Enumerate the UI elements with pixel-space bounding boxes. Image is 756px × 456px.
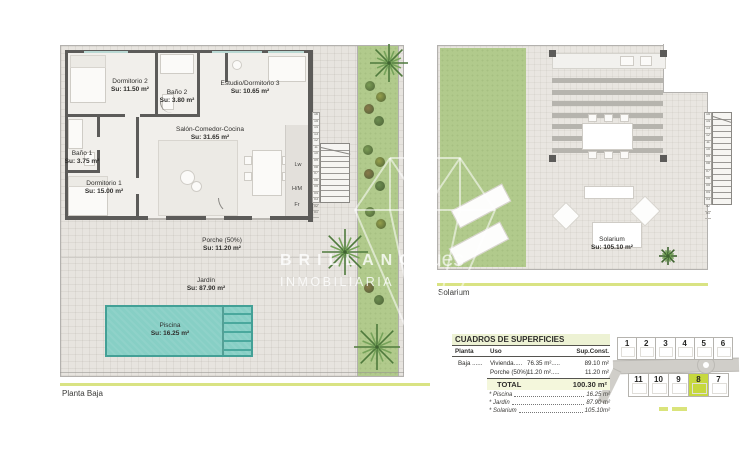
surface-footnotes: * Piscina16.25 m²* Jardín87.90 m²* Solar… — [489, 390, 610, 414]
pergola-slat — [552, 78, 663, 83]
plot-4: 4 — [675, 337, 695, 360]
footnote-label: * Piscina — [489, 392, 512, 398]
room-area: Su: 11.50 m² — [111, 86, 149, 94]
appliance-label-dishwasher: Lw — [289, 162, 307, 168]
room-name: Baño 2 — [160, 89, 195, 97]
pool-step-line — [224, 340, 251, 342]
stair-step-number: 14 — [705, 120, 711, 127]
cell-planta: Baja ...... — [458, 360, 482, 367]
dotted-leader — [512, 404, 585, 405]
stair-step — [321, 185, 349, 186]
logo-fragment — [659, 407, 668, 411]
stair-step-number: 06 — [705, 177, 711, 184]
room-label-jardin: Jardín Su: 87.90 m² — [187, 277, 225, 294]
stair-step-number: 12 — [705, 134, 711, 141]
logo-fragment — [672, 407, 687, 411]
plot-11: 11 — [628, 373, 649, 397]
stair-step — [321, 156, 349, 157]
stair-step-number: 13 — [705, 127, 711, 134]
stair-step — [713, 186, 731, 187]
wall-interior — [97, 117, 100, 137]
bush-icon — [364, 283, 374, 293]
pool-step-line — [224, 313, 251, 315]
room-label-bano-1: Baño 1 Su: 3.75 m² — [65, 150, 100, 167]
pergola-bbq — [640, 56, 652, 66]
accent-line-solarium — [437, 283, 708, 286]
footnote-row: * Solarium105.10m² — [489, 406, 610, 414]
stair-step — [321, 161, 349, 162]
stair-step — [321, 173, 349, 174]
room-area: Su: 87.90 m² — [187, 285, 225, 293]
wall-bottom-segment — [224, 216, 252, 220]
stair-step — [713, 131, 731, 132]
stair-step-number: 04 — [705, 191, 711, 198]
stair-step — [713, 143, 731, 144]
palm-tree-icon — [354, 324, 400, 370]
furniture-chair — [244, 156, 252, 165]
room-label-dormitorio-2: Dormitorio 2 Su: 11.50 m² — [111, 78, 149, 95]
stair-step-number: 02 — [705, 205, 711, 212]
room-area: Su: 16.25 m² — [151, 330, 189, 338]
pergola-post — [660, 50, 667, 57]
col-header-sup-const: Sup.Const. — [574, 348, 609, 355]
outdoor-dining-table — [582, 123, 633, 150]
road — [613, 358, 739, 375]
pool-step-line — [224, 331, 251, 333]
furniture-chair-estudio — [232, 60, 242, 70]
window — [84, 51, 128, 53]
plot-6: 6 — [713, 337, 733, 360]
stair-step-number: 05 — [705, 184, 711, 191]
plot-footprint — [652, 383, 667, 394]
cell-uso: Porche (50%) — [490, 369, 528, 376]
plot-footprint — [692, 383, 707, 394]
plot-footprint — [659, 347, 673, 357]
wall-interior — [155, 50, 158, 117]
furniture-bed-estudio — [268, 56, 306, 82]
solarium-caption: Solarium — [438, 288, 470, 297]
stair-step-number: 08 — [705, 162, 711, 169]
appliance-label-fridge: Fr — [288, 202, 306, 208]
planta-baja-caption: Planta Baja — [62, 389, 103, 398]
appliance-label-oven-micro: H/M — [288, 186, 306, 192]
outdoor-chair — [620, 114, 629, 122]
plot-footprint — [640, 347, 654, 357]
stair-step — [713, 192, 731, 193]
room-name: Jardín — [187, 277, 225, 285]
stair-step — [713, 137, 731, 138]
pergola-post — [549, 50, 556, 57]
room-name: Porche (50%) — [202, 237, 242, 245]
plot-footprint — [697, 347, 711, 357]
stair-step-number: 09 — [705, 155, 711, 162]
stair-numbers-right: 151413121110090807060504030201 — [704, 112, 712, 205]
room-label-solarium: Solarium Su: 105.10 m² — [591, 236, 633, 253]
total-value: 100.30 m² — [560, 380, 607, 389]
footnote-label: * Solarium — [489, 408, 517, 414]
palm-tree-icon — [370, 44, 408, 82]
cell-sup-const: 11.20 m² — [574, 369, 609, 376]
footnote-value: 105.10m² — [585, 408, 610, 414]
furniture-dining-table — [252, 150, 282, 196]
stair-step — [713, 155, 731, 156]
stair-step-number: 15 — [705, 113, 711, 120]
room-area: Su: 3.80 m² — [160, 97, 195, 105]
pergola-sink — [620, 56, 634, 66]
stair-step — [321, 196, 349, 197]
footnote-row: * Jardín87.90 m² — [489, 398, 610, 406]
wall-bottom-segment — [270, 216, 313, 220]
plot-footprint — [632, 383, 647, 394]
roundabout-center — [703, 362, 709, 368]
plot-footprint — [717, 347, 731, 357]
parcel-notch — [663, 44, 708, 93]
stair-step — [321, 167, 349, 168]
pool-step-line — [224, 322, 251, 324]
wall-left — [65, 50, 68, 220]
parcel-inner-border — [60, 372, 404, 373]
room-area: Su: 31.65 m² — [176, 134, 244, 142]
total-label: TOTAL — [497, 380, 521, 389]
plot-footprint — [672, 383, 687, 394]
plot-2: 2 — [636, 337, 656, 360]
window — [212, 51, 262, 53]
bush-icon — [375, 157, 385, 167]
room-label-piscina: Piscina Su: 16.25 m² — [151, 322, 189, 339]
room-label-porche: Porche (50%) Su: 11.20 m² — [202, 237, 242, 254]
stair-step — [321, 179, 349, 180]
dotted-leader — [514, 396, 584, 397]
col-header-uso: Uso — [490, 348, 502, 355]
stair-step — [713, 174, 731, 175]
room-name: Piscina — [151, 322, 189, 330]
furniture-pillow — [70, 55, 106, 68]
stair-step-number: 07 — [705, 170, 711, 177]
stair-step — [713, 168, 731, 169]
bush-icon — [365, 81, 375, 91]
stair-step — [713, 180, 731, 181]
plot-footprint — [621, 347, 635, 357]
plot-3: 3 — [655, 337, 675, 360]
plot-8: 8 — [688, 373, 709, 397]
room-area: Su: 10.65 m² — [221, 88, 280, 96]
porch-garden-line — [61, 257, 357, 258]
stair-step — [713, 125, 731, 126]
wall-interior — [225, 50, 228, 82]
room-name: Baño 1 — [65, 150, 100, 158]
dotted-leader — [519, 412, 583, 413]
pergola-slat — [552, 90, 663, 95]
room-area: Su: 105.10 m² — [591, 244, 633, 252]
stair-step-number: 01 — [313, 211, 319, 218]
stair-numbers-left: 16151413121110090807060504030201 — [312, 112, 320, 203]
plot-10: 10 — [648, 373, 669, 397]
col-header-planta: Planta — [455, 348, 474, 355]
outdoor-sofa — [584, 186, 634, 199]
furniture-coffee-table — [191, 181, 202, 192]
stair-step — [713, 162, 731, 163]
furniture-chair — [244, 172, 252, 181]
furniture-shower-bano-1 — [68, 119, 83, 149]
bush-icon — [364, 169, 374, 179]
room-label-bano-2: Baño 2 Su: 3.80 m² — [160, 89, 195, 106]
stair-step-number: 03 — [705, 198, 711, 205]
bush-icon — [376, 92, 386, 102]
wall-interior — [140, 114, 200, 117]
stair-step — [713, 198, 731, 199]
bush-icon — [363, 145, 373, 155]
bush-icon — [376, 219, 386, 229]
plot-row-bottom: 1110987 — [628, 373, 728, 397]
stair-step-number: 11 — [705, 141, 711, 148]
bush-icon — [365, 207, 375, 217]
room-name: Dormitorio 1 — [85, 180, 123, 188]
cell-sup-util: 76.35 m²..... — [527, 360, 560, 367]
room-name: Estudio/Dormitorio 3 — [221, 80, 280, 88]
stair-step-number: 01 — [705, 212, 711, 219]
plot-row-top: 123456 — [617, 337, 732, 360]
pergola-post — [549, 155, 556, 162]
outdoor-chair — [604, 114, 613, 122]
room-label-estudio-dormitorio-3: Estudio/Dormitorio 3 Su: 10.65 m² — [221, 80, 280, 97]
wall-interior — [65, 170, 100, 173]
outdoor-chair — [604, 151, 613, 159]
room-name: Solarium — [591, 236, 633, 244]
pergola-post — [660, 155, 667, 162]
wall-bottom-segment — [166, 216, 206, 220]
room-area: Su: 11.20 m² — [202, 245, 242, 253]
door-sill — [148, 218, 166, 220]
stair-step — [713, 149, 731, 150]
room-area: Su: 15.00 m² — [85, 188, 123, 196]
room-label-salon-comedor-cocina: Salón-Comedor-Cocina Su: 31.65 m² — [176, 126, 244, 143]
footnote-value: 87.90 m² — [586, 400, 610, 406]
bush-icon — [374, 116, 384, 126]
accent-line-planta-baja — [60, 383, 430, 386]
wall-interior — [136, 117, 139, 178]
plot-1: 1 — [617, 337, 637, 360]
outdoor-chair — [588, 151, 597, 159]
pool-step-line — [224, 349, 251, 351]
door-sill — [206, 218, 224, 220]
room-name: Salón-Comedor-Cocina — [176, 126, 244, 134]
room-label-dormitorio-1: Dormitorio 1 Su: 15.00 m² — [85, 180, 123, 197]
floorplan-sheet: Lw H/M Fr 161514131211100908070605040302… — [0, 0, 756, 456]
plot-footprint — [712, 383, 727, 394]
wall-interior — [65, 114, 125, 117]
stair-step-number: 10 — [705, 148, 711, 155]
room-name: Dormitorio 2 — [111, 78, 149, 86]
outdoor-chair — [620, 151, 629, 159]
footnote-value: 16.25 m² — [586, 392, 610, 398]
palm-tree-icon — [322, 229, 368, 275]
cell-sup-const: 89.10 m² — [574, 360, 609, 367]
plot-footprint — [678, 347, 692, 357]
window — [268, 51, 304, 53]
palm-tree-icon — [659, 247, 677, 265]
cell-sup-util: 11.20 m²..... — [527, 369, 560, 376]
outdoor-chair — [588, 114, 597, 122]
door-sill — [252, 218, 270, 220]
wall-interior — [197, 50, 200, 117]
staircase-right — [712, 112, 732, 205]
cell-uso: Vivienda..... — [490, 360, 522, 367]
footnote-label: * Jardín — [489, 400, 510, 406]
wall-interior — [136, 194, 139, 219]
furniture-shower-bano-2 — [160, 54, 194, 74]
pergola-slat — [552, 101, 663, 106]
bush-icon — [375, 181, 385, 191]
bush-icon — [364, 104, 374, 114]
room-area: Su: 3.75 m² — [65, 158, 100, 166]
bush-icon — [374, 295, 384, 305]
surface-table-title: CUADROS DE SUPERFICIES — [452, 334, 610, 346]
plot-7: 7 — [708, 373, 729, 397]
table-header-rule — [452, 356, 610, 357]
plot-5: 5 — [694, 337, 714, 360]
stair-step — [321, 190, 349, 191]
footnote-row: * Piscina16.25 m² — [489, 390, 610, 398]
plot-9: 9 — [668, 373, 689, 397]
